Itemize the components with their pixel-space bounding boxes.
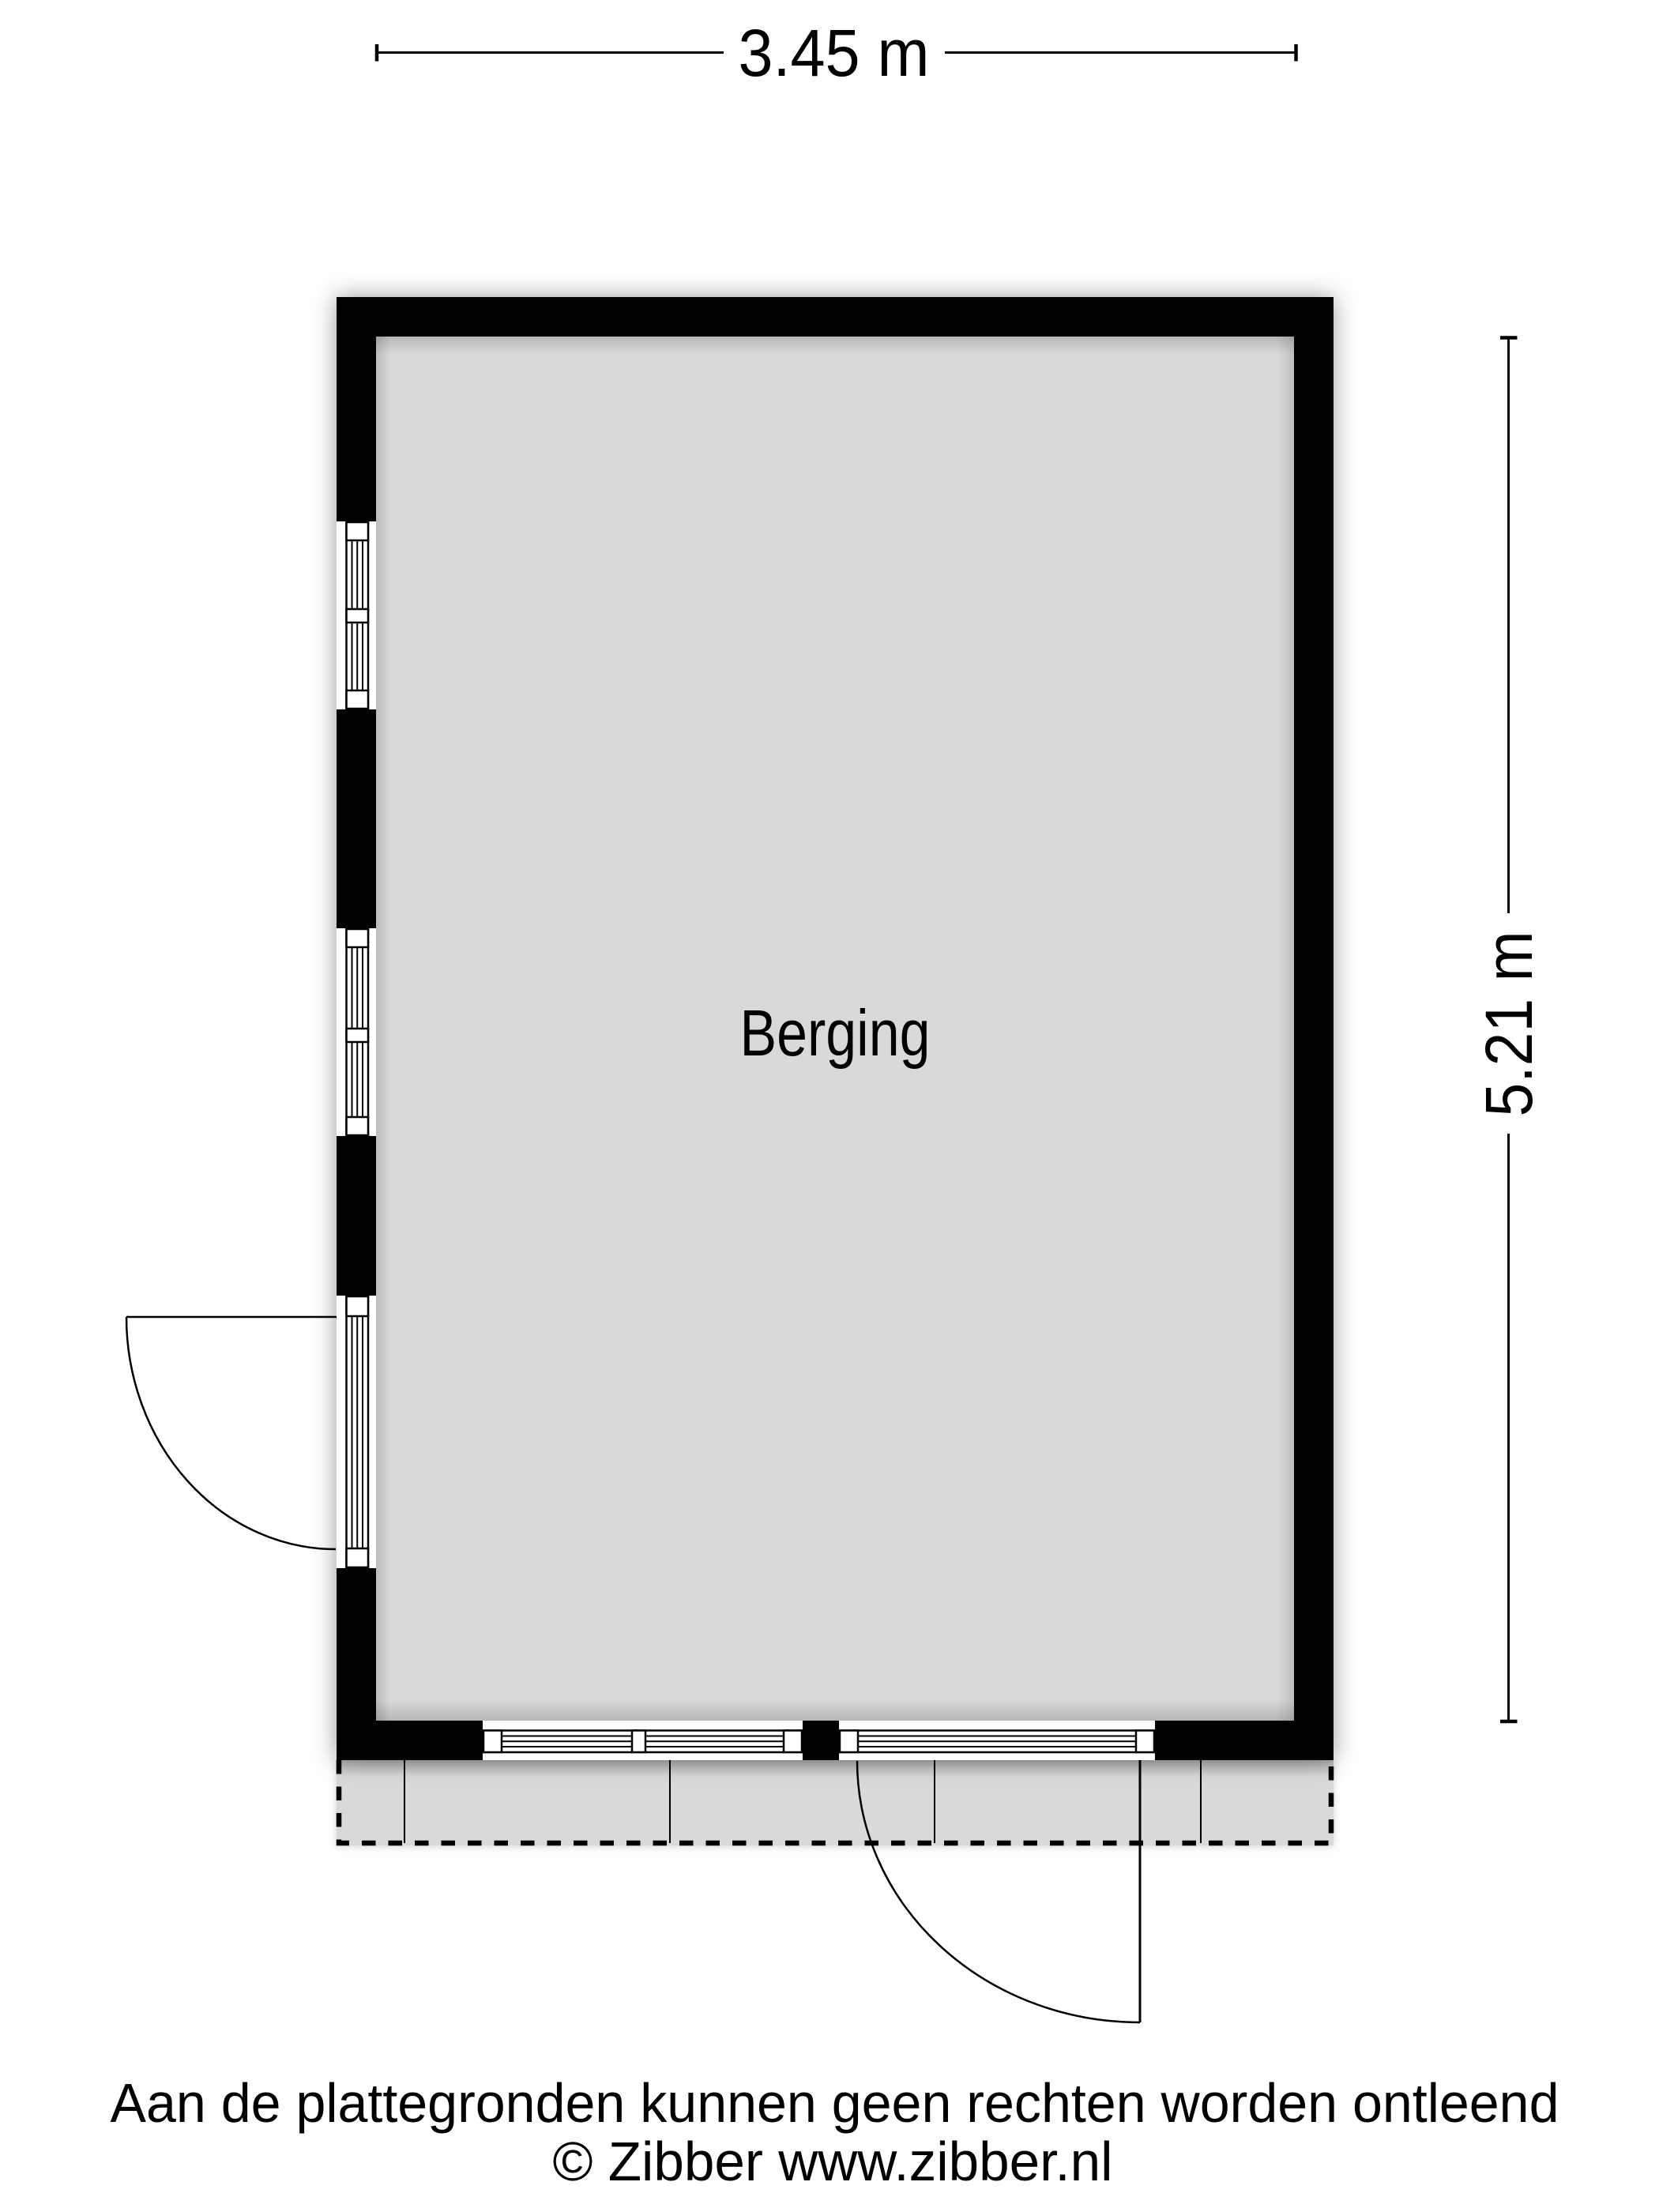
svg-text:© Zibber www.zibber.nl: © Zibber www.zibber.nl (553, 2131, 1113, 2192)
svg-text:Berging: Berging (740, 996, 931, 1070)
svg-text:3.45 m: 3.45 m (739, 16, 930, 90)
svg-text:Aan de plattegronden kunnen ge: Aan de plattegronden kunnen geen rechten… (111, 2072, 1559, 2134)
svg-text:5.21 m: 5.21 m (1472, 931, 1546, 1117)
